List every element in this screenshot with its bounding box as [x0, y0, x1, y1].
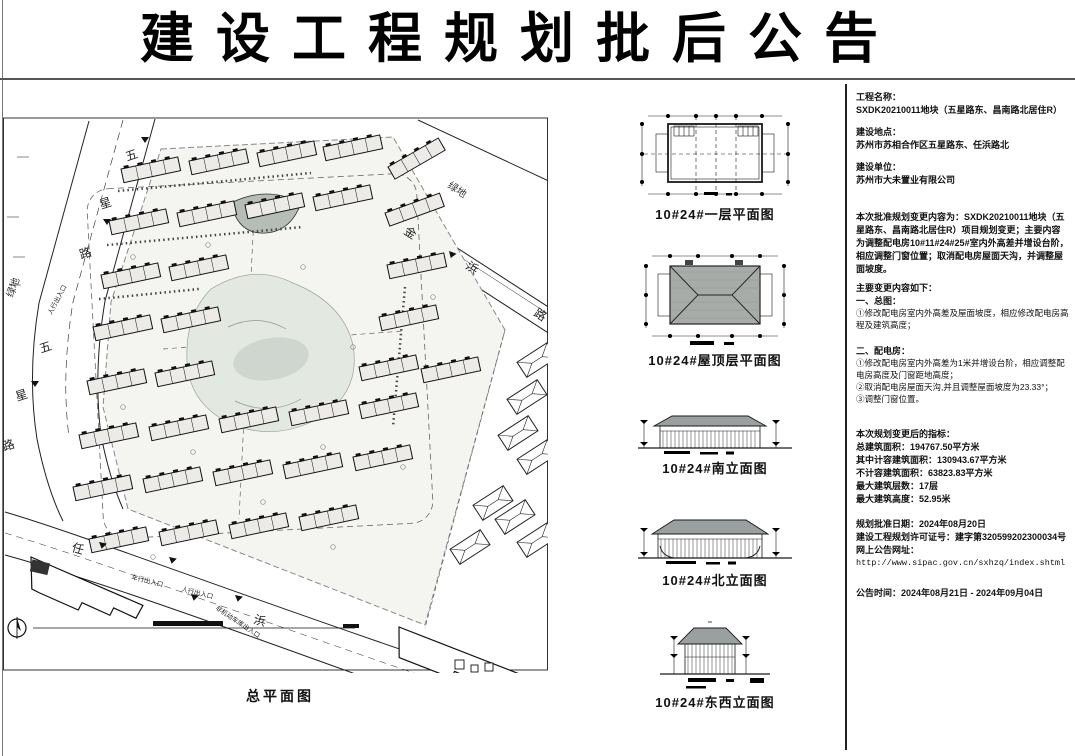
announce-period: 公告时间：2024年08月21日 - 2024年09月04日 — [856, 587, 1069, 600]
drawing-eastwest-elevation — [630, 612, 800, 692]
indicator-row: 总建筑面积：194767.50平方米 — [856, 441, 1069, 454]
section2-item: ①修改配电房室内外高差为1米并增设台阶，相应调整配电房高度及门窗距地高度； — [856, 358, 1069, 382]
section2-item: ②取消配电房屋面天沟,并且调整屋面坡度为23.33°； — [856, 382, 1069, 394]
info-panel: 工程名称： SXDK20210011地块（五星路东、昌南路北居住R） 建设地点：… — [845, 84, 1073, 750]
site-plan-map: 五 星 路 五 星 路 金 浜 路 任 浜 绿地 绿地 人行出入口 车行出入口 … — [3, 117, 548, 673]
caption-north-elevation: 10#24#北立面图 — [630, 570, 800, 589]
indicator-row: 其中计容建筑面积：130943.67平方米 — [856, 454, 1069, 467]
caption-south-elevation: 10#24#南立面图 — [630, 458, 800, 477]
title-divider — [0, 78, 1075, 80]
section1-item: ①修改配电房室内外高差及屋面坡度，相应修改配电房高程及建筑高度； — [856, 308, 1069, 332]
caption-eastwest-elevation: 10#24#东西立面图 — [630, 692, 800, 711]
drawing-floor-plan — [630, 108, 800, 202]
roof-surface — [670, 260, 760, 324]
builder: 苏州市大未置业有限公司 — [856, 174, 1069, 187]
drawing-south-elevation — [630, 400, 800, 458]
section1-heading: 一、总图： — [856, 295, 1069, 308]
url-label: 网上公告网址： — [856, 544, 1069, 557]
location-label: 建设地点： — [856, 126, 1069, 139]
section2-heading: 二、配电房： — [856, 345, 1069, 358]
builder-label: 建设单位： — [856, 161, 1069, 174]
grid-dots — [640, 114, 790, 196]
drawing-north-elevation — [630, 506, 800, 570]
announcement-url: http://www.sipac.gov.cn/sxhzq/index.shtm… — [856, 557, 1069, 569]
indicator-row: 不计容建筑面积：63823.83平方米 — [856, 467, 1069, 480]
indicator-row: 最大建筑层数：17层 — [856, 480, 1069, 493]
caption-floor-plan: 10#24#一层平面图 — [630, 204, 800, 223]
illegible-annotation — [343, 624, 359, 628]
permit-no: 建设工程规划许可证号：建字第320599202300034号 — [856, 531, 1069, 544]
indicator-row: 最大建筑高度：52.95米 — [856, 493, 1069, 506]
change-summary: 本次批准规划变更内容为：SXDK20210011地块（五星路东、昌南路北居住R）… — [856, 211, 1069, 276]
section2-item: ③调整门窗位置。 — [856, 394, 1069, 406]
indicators-heading: 本次规划变更后的指标： — [856, 428, 1069, 441]
project-name-label: 工程名称： — [856, 91, 1069, 104]
illegible-annotation — [153, 621, 223, 626]
caption-roof-plan: 10#24#屋顶层平面图 — [630, 350, 800, 369]
changes-heading: 主要变更内容如下： — [856, 282, 1069, 295]
site-plan-caption: 总平面图 — [180, 686, 380, 706]
approval-date: 规划批准日期：2024年08月20日 — [856, 518, 1069, 531]
location: 苏州市苏相合作区五星路东、任浜路北 — [856, 139, 1069, 152]
project-name: SXDK20210011地块（五星路东、昌南路北居住R） — [856, 104, 1069, 117]
page-title: 建设工程规划批后公告 — [140, 2, 880, 76]
drawing-roof-plan — [630, 246, 800, 348]
